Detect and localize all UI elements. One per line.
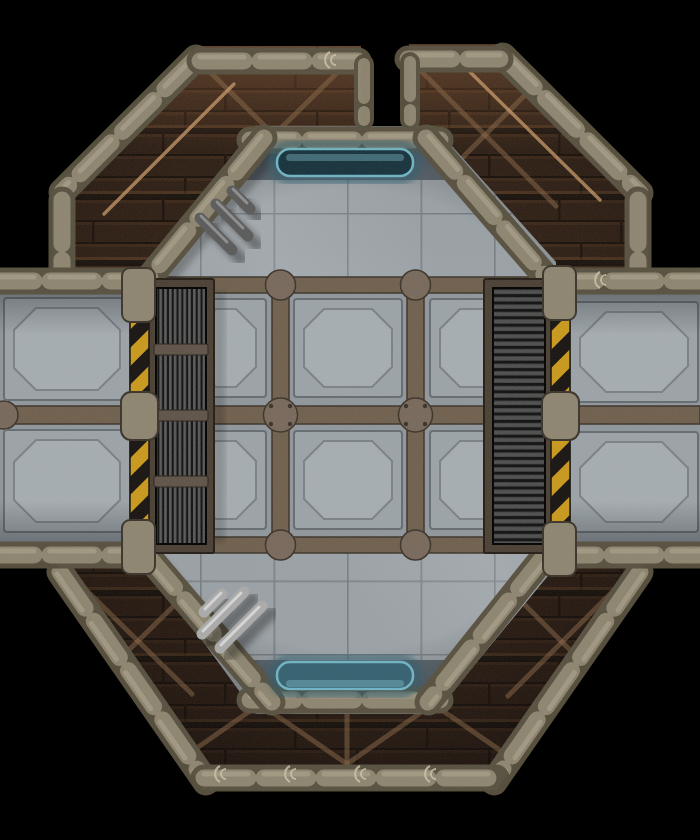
battlemap-canvas[interactable] xyxy=(0,0,700,840)
map-tile-svg xyxy=(0,0,700,840)
